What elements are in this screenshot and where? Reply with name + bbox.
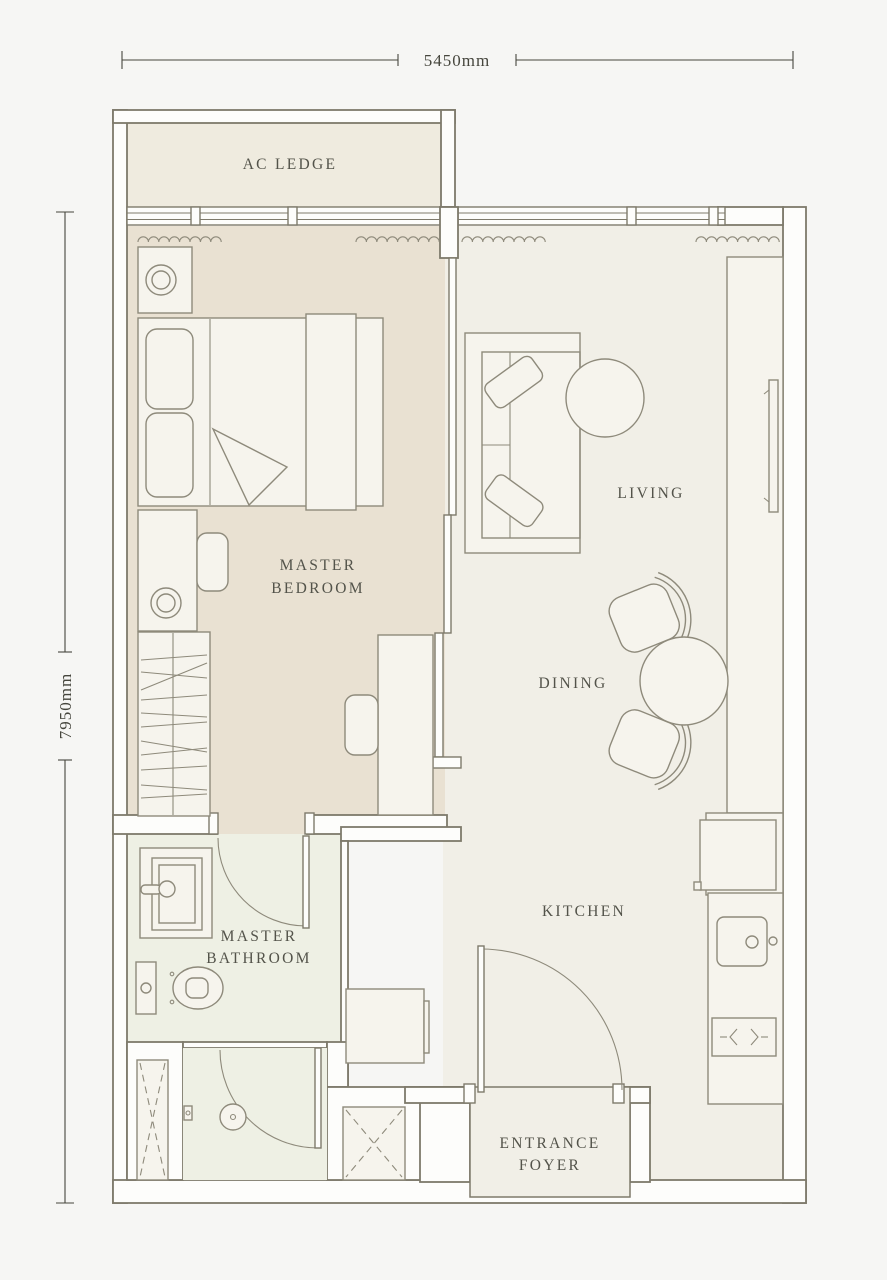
stool (197, 533, 228, 591)
window-bedroom (127, 207, 441, 225)
room-label-dining: DINING (539, 675, 608, 692)
window-band (127, 207, 725, 225)
toilet-tank (136, 962, 156, 1014)
wall-left (113, 110, 127, 1203)
floor-plan-page: AC LEDGE MASTER BEDROOM LIVING DINING KI… (0, 0, 887, 1280)
dining-table (640, 637, 728, 725)
shower-valve (184, 1106, 192, 1120)
window-mullion (627, 207, 636, 225)
tv (769, 380, 778, 512)
service-shaft-tall (137, 1060, 168, 1180)
entrance-door-leaf (478, 946, 484, 1092)
dimension-width-label: 5450mm (424, 51, 490, 70)
pillow (146, 329, 193, 409)
dimension-top: 5450mm (122, 51, 793, 70)
room-label-ac-ledge: AC LEDGE (243, 156, 338, 173)
faucet-spout (159, 881, 175, 897)
hob (712, 1018, 776, 1056)
nightstand (138, 247, 192, 313)
room-label-master-bedroom-2: BEDROOM (271, 580, 365, 597)
wall-bedroom-south-left (113, 815, 217, 834)
door-jamb (305, 813, 314, 834)
desk-chair (345, 695, 378, 755)
wall-top-right-corner (718, 207, 783, 225)
glass-panel (449, 258, 456, 515)
glass-panel (444, 515, 451, 633)
window-mullion (709, 207, 718, 225)
washer-handle (424, 1001, 429, 1053)
room-label-master-bathroom-2: BATHROOM (206, 950, 311, 967)
pillow (146, 413, 193, 497)
room-label-entrance-foyer-2: FOYER (519, 1157, 581, 1174)
fridge (694, 813, 783, 895)
fridge-handle (694, 882, 701, 890)
floor-plan-drawing: AC LEDGE MASTER BEDROOM LIVING DINING KI… (0, 0, 887, 1280)
wall-bath-shower-divider (183, 1042, 327, 1048)
window-mullion (288, 207, 297, 225)
room-label-master-bedroom-1: MASTER (280, 557, 357, 574)
shower-drain (220, 1104, 246, 1130)
wall-ac-ledge-top (113, 110, 455, 123)
dimension-left: 7950mm (56, 212, 75, 1203)
bed-runner (306, 314, 356, 510)
window-living (458, 207, 725, 225)
room-label-master-bathroom-1: MASTER (221, 928, 298, 945)
wall-entrance-left-jamb (405, 1087, 473, 1103)
wall-ac-ledge-right (441, 110, 455, 207)
bedroom-door-threshold (217, 815, 307, 834)
washing-machine (346, 989, 429, 1063)
partition-end-post (433, 757, 461, 768)
window-mullion (191, 207, 200, 225)
vanity-sink (140, 848, 212, 938)
bathroom-door-leaf (303, 836, 309, 928)
sofa (465, 333, 580, 553)
wardrobe (138, 632, 210, 816)
faucet (141, 885, 161, 894)
wall-bottom (113, 1180, 806, 1203)
shower-door-leaf (315, 1048, 321, 1148)
room-label-entrance-foyer-1: ENTRANCE (499, 1135, 600, 1152)
wall-right (783, 207, 806, 1203)
wall-kitchen-north (341, 827, 461, 841)
tv-console (727, 257, 783, 813)
room-label-kitchen: KITCHEN (542, 903, 626, 920)
door-jamb (464, 1084, 475, 1103)
wall-pier-bedroom-living (440, 207, 458, 258)
sliding-door-panel (435, 633, 443, 757)
room-label-living: LIVING (617, 485, 684, 502)
service-shaft-square (343, 1107, 405, 1180)
toilet-bowl (173, 967, 223, 1009)
bed (138, 314, 383, 510)
shower-floor (183, 1048, 327, 1180)
coffee-table (566, 359, 644, 437)
wall-shower-right (327, 1042, 348, 1087)
dimension-height-label: 7950mm (56, 673, 75, 739)
